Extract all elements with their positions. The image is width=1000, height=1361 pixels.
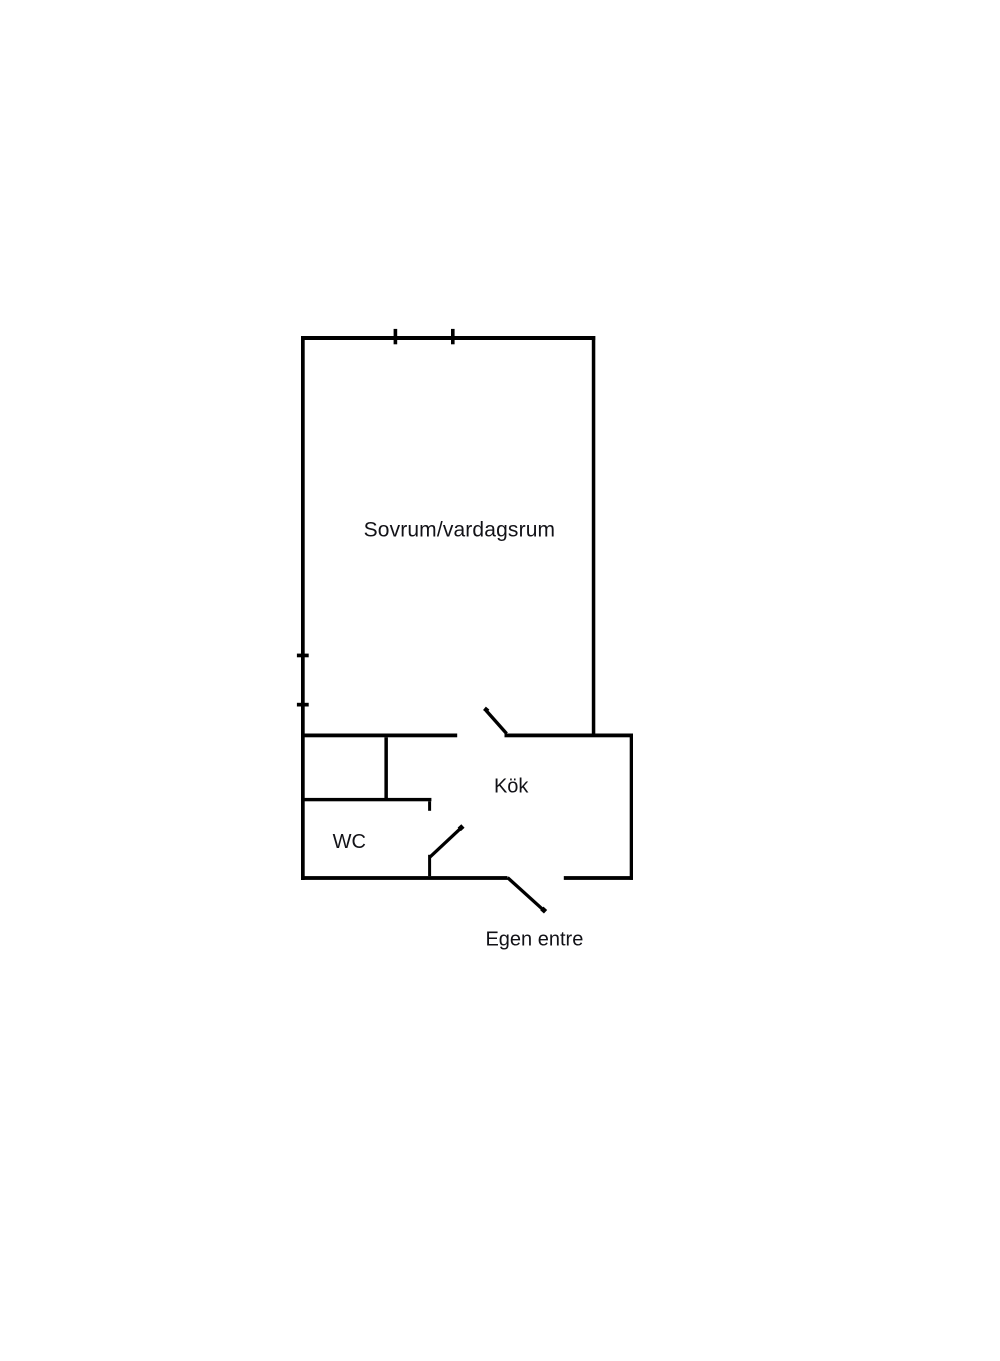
svg-text:WC: WC <box>333 831 366 853</box>
svg-text:Kök: Kök <box>494 776 529 798</box>
svg-text:Egen entre: Egen entre <box>485 929 583 951</box>
svg-text:Sovrum/vardagsrum: Sovrum/vardagsrum <box>364 519 556 542</box>
